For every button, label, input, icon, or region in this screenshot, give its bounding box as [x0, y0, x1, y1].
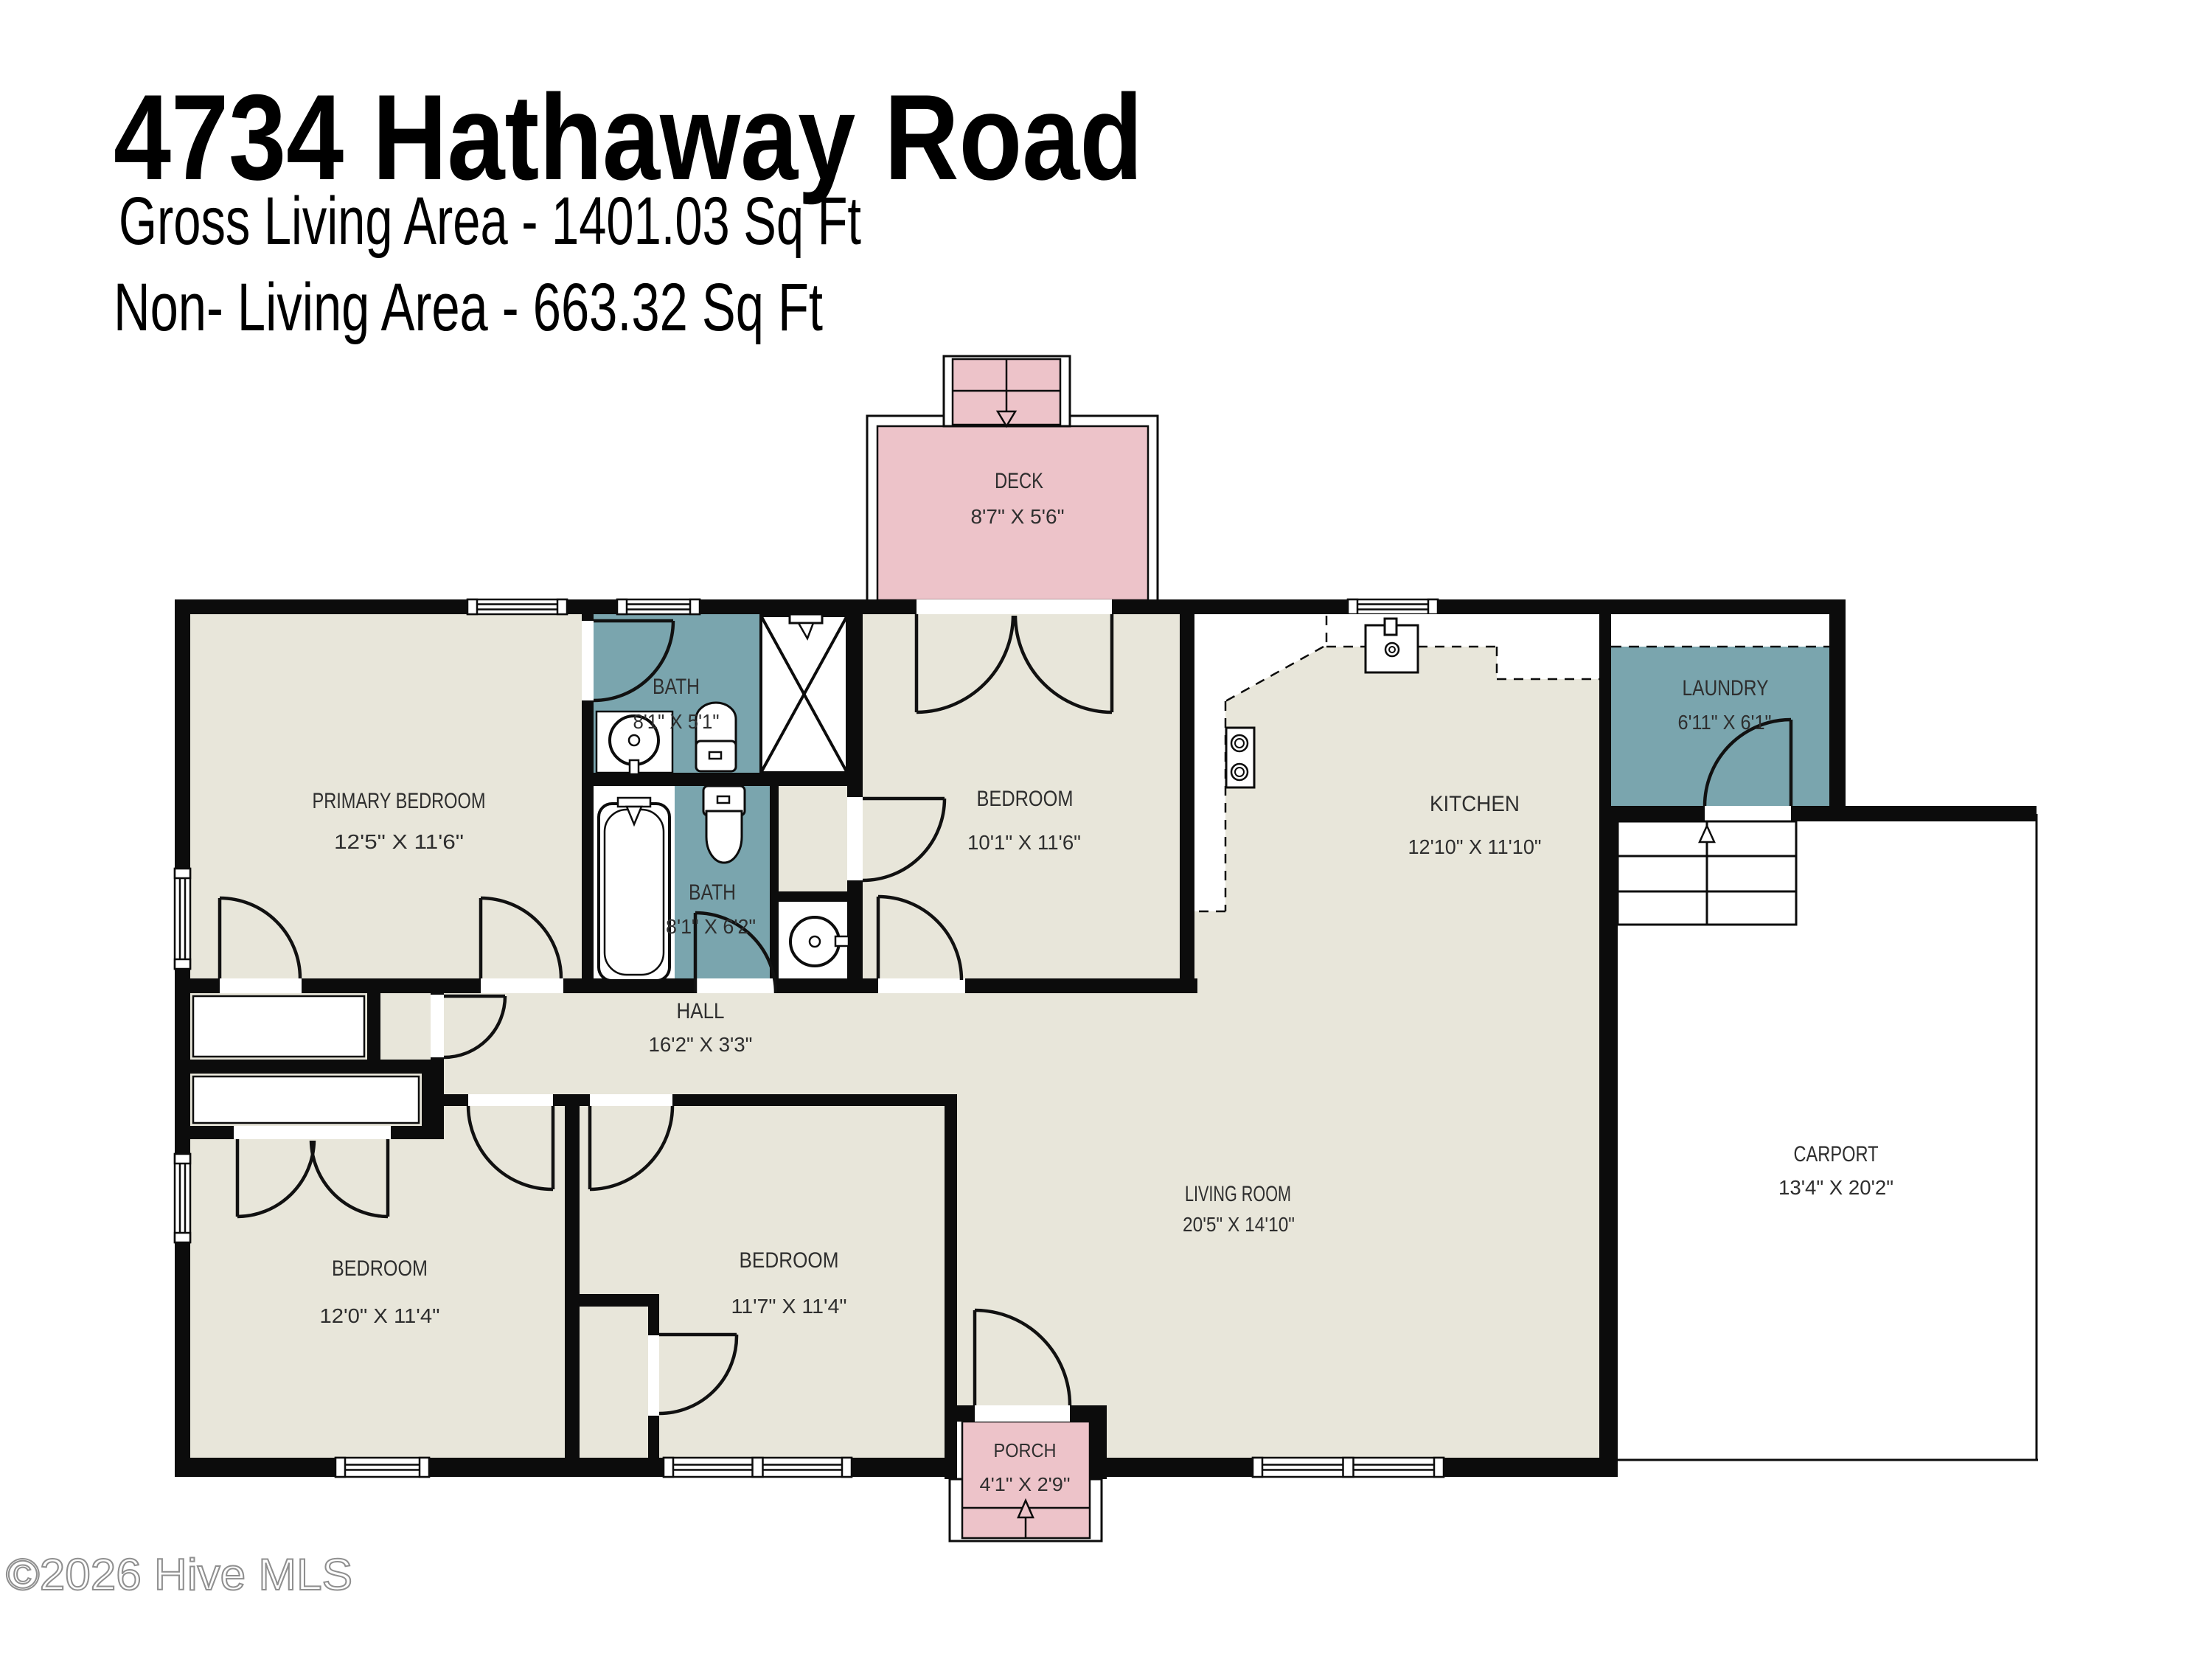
svg-text:BATH: BATH [653, 675, 700, 699]
svg-text:©2026 Hive MLS: ©2026 Hive MLS [6, 1550, 352, 1599]
svg-text:HALL: HALL [677, 999, 725, 1023]
svg-text:LIVING ROOM: LIVING ROOM [1185, 1182, 1291, 1206]
svg-text:20'5" X 14'10": 20'5" X 14'10" [1183, 1213, 1295, 1236]
svg-text:CARPORT: CARPORT [1794, 1142, 1879, 1166]
svg-text:BEDROOM: BEDROOM [332, 1256, 428, 1281]
svg-text:LAUNDRY: LAUNDRY [1683, 676, 1769, 700]
svg-text:BEDROOM: BEDROOM [977, 787, 1074, 811]
svg-text:KITCHEN: KITCHEN [1430, 792, 1520, 816]
svg-text:BEDROOM: BEDROOM [740, 1248, 839, 1273]
svg-text:12'5" X 11'6": 12'5" X 11'6" [334, 830, 464, 853]
svg-text:12'10" X 11'10": 12'10" X 11'10" [1408, 835, 1542, 858]
svg-text:12'0" X 11'4": 12'0" X 11'4" [320, 1304, 440, 1327]
svg-text:Gross Living Area - 1401.03 Sq: Gross Living Area - 1401.03 Sq Ft [119, 184, 861, 259]
svg-text:BATH: BATH [689, 880, 736, 905]
svg-text:11'7" X 11'4": 11'7" X 11'4" [731, 1295, 847, 1318]
svg-text:4'1" X 2'9": 4'1" X 2'9" [980, 1473, 1071, 1495]
svg-text:Non- Living Area - 663.32 Sq F: Non- Living Area - 663.32 Sq Ft [114, 270, 823, 345]
svg-text:8'1" X 5'1": 8'1" X 5'1" [633, 710, 720, 733]
svg-text:8'7" X 5'6": 8'7" X 5'6" [971, 505, 1065, 528]
svg-text:DECK: DECK [995, 469, 1043, 493]
svg-text:8'1" X 6'2": 8'1" X 6'2" [666, 915, 756, 938]
svg-text:13'4" X 20'2": 13'4" X 20'2" [1778, 1176, 1893, 1199]
svg-text:PORCH: PORCH [994, 1439, 1057, 1461]
svg-text:PRIMARY BEDROOM: PRIMARY BEDROOM [313, 789, 486, 813]
svg-text:6'11" X 6'1": 6'11" X 6'1" [1678, 711, 1772, 734]
svg-text:10'1" X 11'6": 10'1" X 11'6" [967, 831, 1081, 854]
svg-text:16'2" X 3'3": 16'2" X 3'3" [649, 1033, 753, 1056]
